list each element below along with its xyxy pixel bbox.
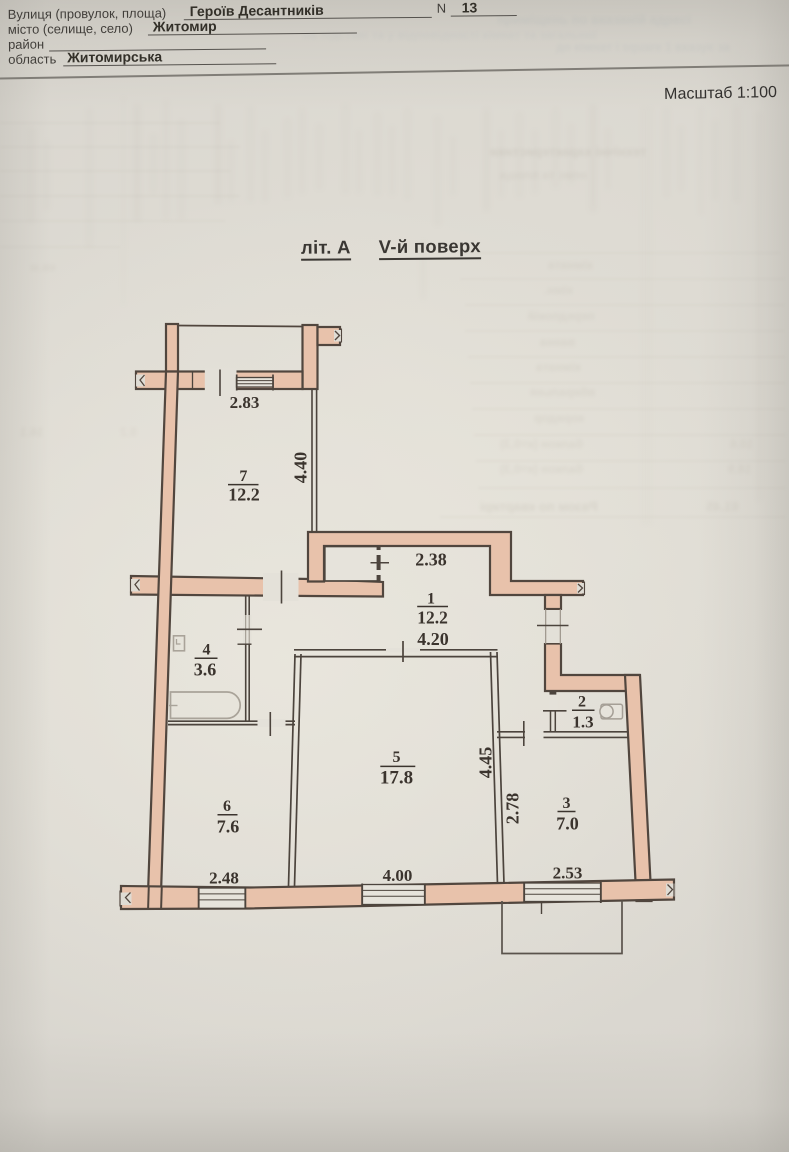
svg-text:7.6: 7.6 (217, 817, 240, 837)
svg-text:2: 2 (578, 694, 586, 711)
svg-text:4.40: 4.40 (291, 452, 311, 484)
svg-text:5: 5 (393, 749, 401, 766)
svg-text:1: 1 (427, 591, 435, 608)
svg-text:2.38: 2.38 (415, 550, 447, 570)
svg-text:4.20: 4.20 (417, 629, 449, 649)
svg-text:12.2: 12.2 (417, 608, 448, 628)
svg-text:7: 7 (239, 468, 247, 485)
svg-text:2.78: 2.78 (503, 793, 523, 825)
svg-text:7.0: 7.0 (556, 814, 579, 834)
svg-text:4.45: 4.45 (476, 747, 496, 779)
svg-text:3: 3 (563, 795, 571, 812)
svg-text:2.48: 2.48 (209, 869, 239, 888)
svg-text:2.83: 2.83 (230, 393, 260, 412)
svg-text:17.8: 17.8 (380, 768, 413, 789)
svg-text:4.00: 4.00 (383, 866, 413, 885)
svg-text:12.2: 12.2 (228, 485, 260, 505)
svg-text:4: 4 (203, 642, 211, 659)
svg-text:3.6: 3.6 (194, 660, 217, 680)
svg-text:1.3: 1.3 (572, 713, 593, 732)
svg-text:6: 6 (223, 798, 231, 815)
svg-text:2.53: 2.53 (553, 864, 583, 883)
